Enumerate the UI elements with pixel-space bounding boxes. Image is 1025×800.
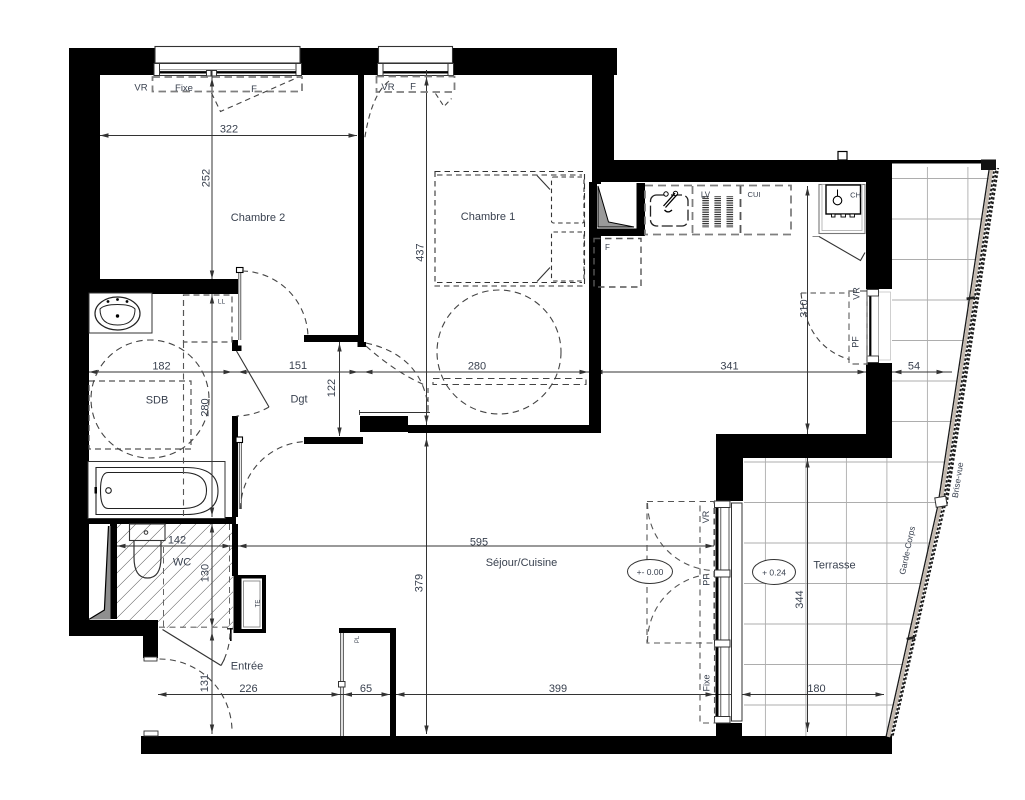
svg-text:VR: VR	[381, 82, 394, 93]
svg-text:322: 322	[220, 124, 238, 136]
svg-text:280: 280	[200, 398, 212, 416]
svg-text:WC: WC	[173, 557, 191, 569]
svg-text:VR: VR	[852, 287, 862, 300]
svg-text:SDB: SDB	[146, 395, 169, 407]
svg-text:379: 379	[414, 574, 426, 592]
svg-text:Entrée: Entrée	[231, 661, 263, 673]
svg-text:Séjour/Cuisine: Séjour/Cuisine	[486, 557, 558, 569]
svg-text:+ 0.24: + 0.24	[762, 568, 786, 578]
svg-text:180: 180	[807, 683, 825, 695]
svg-text:437: 437	[415, 243, 427, 261]
svg-text:151: 151	[289, 360, 307, 372]
svg-text:TE: TE	[256, 600, 262, 608]
svg-text:F: F	[605, 243, 610, 252]
svg-text:341: 341	[720, 361, 738, 373]
svg-text:Terrasse: Terrasse	[813, 560, 855, 572]
svg-text:310: 310	[799, 299, 811, 317]
svg-text:142: 142	[168, 535, 186, 547]
svg-text:182: 182	[152, 361, 170, 373]
svg-text:VR: VR	[134, 83, 147, 94]
svg-text:CH: CH	[850, 191, 861, 200]
svg-text:252: 252	[201, 169, 213, 187]
svg-text:F: F	[251, 84, 257, 95]
svg-text:PF: PF	[702, 574, 712, 586]
svg-text:344: 344	[794, 590, 806, 608]
svg-text:+- 0.00: +- 0.00	[637, 567, 664, 577]
svg-text:Fixe: Fixe	[175, 83, 193, 94]
svg-text:54: 54	[908, 361, 920, 373]
svg-text:PL: PL	[355, 635, 361, 643]
svg-text:130: 130	[200, 564, 212, 582]
svg-text:Dgt: Dgt	[290, 394, 307, 406]
svg-text:Fixe: Fixe	[702, 674, 712, 691]
svg-text:122: 122	[326, 379, 338, 397]
svg-text:LL: LL	[218, 299, 226, 306]
svg-text:Chambre 1: Chambre 1	[461, 211, 515, 223]
svg-text:VR: VR	[701, 510, 711, 523]
svg-text:PF: PF	[851, 336, 861, 348]
svg-text:280: 280	[468, 361, 486, 373]
svg-text:595: 595	[470, 537, 488, 549]
svg-text:65: 65	[360, 683, 372, 695]
svg-text:Chambre 2: Chambre 2	[231, 212, 285, 224]
svg-text:F: F	[410, 82, 416, 93]
svg-text:LV: LV	[701, 191, 711, 200]
svg-text:226: 226	[239, 683, 257, 695]
svg-text:131: 131	[199, 674, 211, 692]
svg-text:399: 399	[549, 683, 567, 695]
svg-text:CUI: CUI	[748, 190, 761, 199]
